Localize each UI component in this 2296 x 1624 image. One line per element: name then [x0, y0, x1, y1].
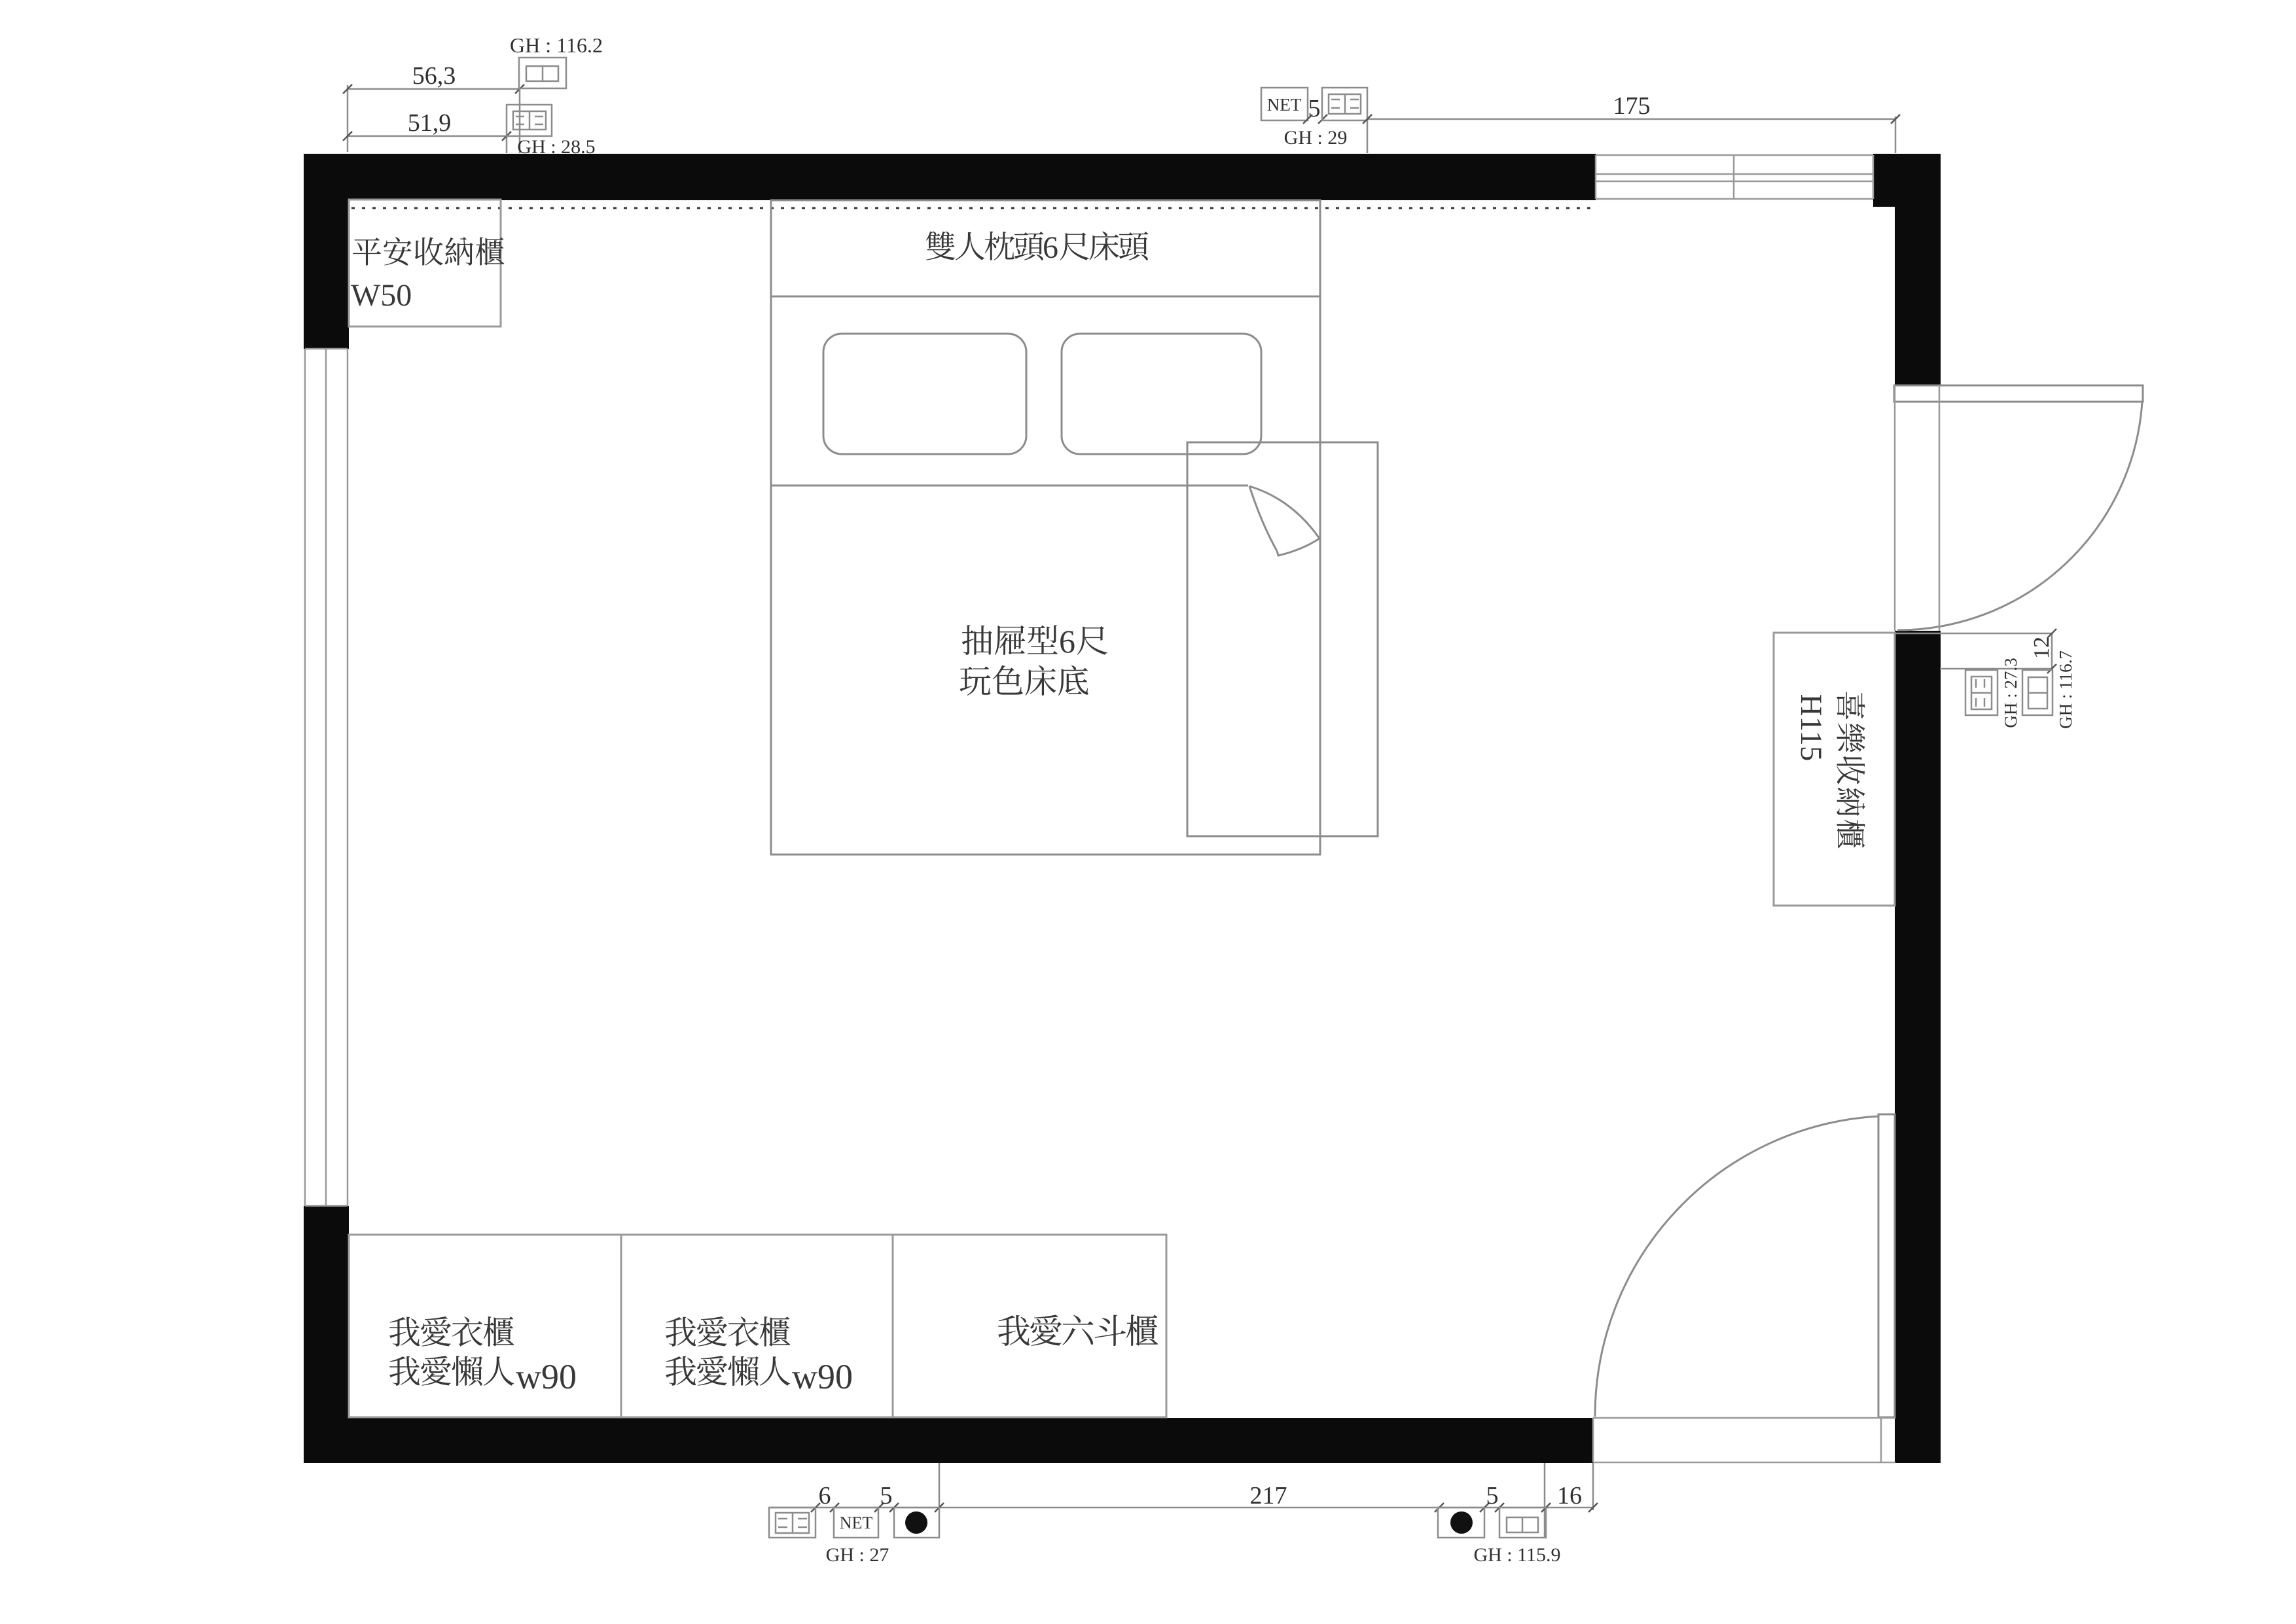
- svg-text:w90: w90: [516, 1357, 577, 1396]
- svg-text:175: 175: [1613, 92, 1651, 120]
- svg-text:6: 6: [819, 1482, 831, 1509]
- svg-text:NET: NET: [840, 1513, 873, 1532]
- svg-text:GH : 116.2: GH : 116.2: [510, 33, 603, 57]
- svg-text:12: 12: [2030, 637, 2054, 659]
- svg-text:217: 217: [1250, 1482, 1287, 1509]
- svg-text:GH : 28.5: GH : 28.5: [517, 136, 595, 158]
- svg-text:GH : 27: GH : 27: [826, 1544, 889, 1566]
- svg-text:56,3: 56,3: [412, 62, 456, 90]
- svg-text:GH : 27.3: GH : 27.3: [2001, 658, 2020, 728]
- svg-text:6: 6: [1059, 623, 1075, 660]
- svg-text:GH : 115.9: GH : 115.9: [1473, 1544, 1560, 1566]
- svg-text:5: 5: [1486, 1482, 1499, 1509]
- svg-text:5: 5: [1308, 95, 1321, 122]
- svg-text:w90: w90: [792, 1357, 853, 1396]
- svg-text:51,9: 51,9: [408, 109, 452, 137]
- svg-text:GH : 29: GH : 29: [1284, 127, 1348, 149]
- svg-text:6: 6: [1043, 230, 1058, 265]
- svg-text:H115: H115: [1794, 694, 1828, 762]
- svg-text:NET: NET: [1267, 95, 1302, 115]
- svg-text:5: 5: [880, 1482, 893, 1509]
- svg-text:W50: W50: [351, 278, 412, 313]
- svg-text:16: 16: [1557, 1482, 1582, 1509]
- svg-text:GH : 116.7: GH : 116.7: [2056, 650, 2075, 729]
